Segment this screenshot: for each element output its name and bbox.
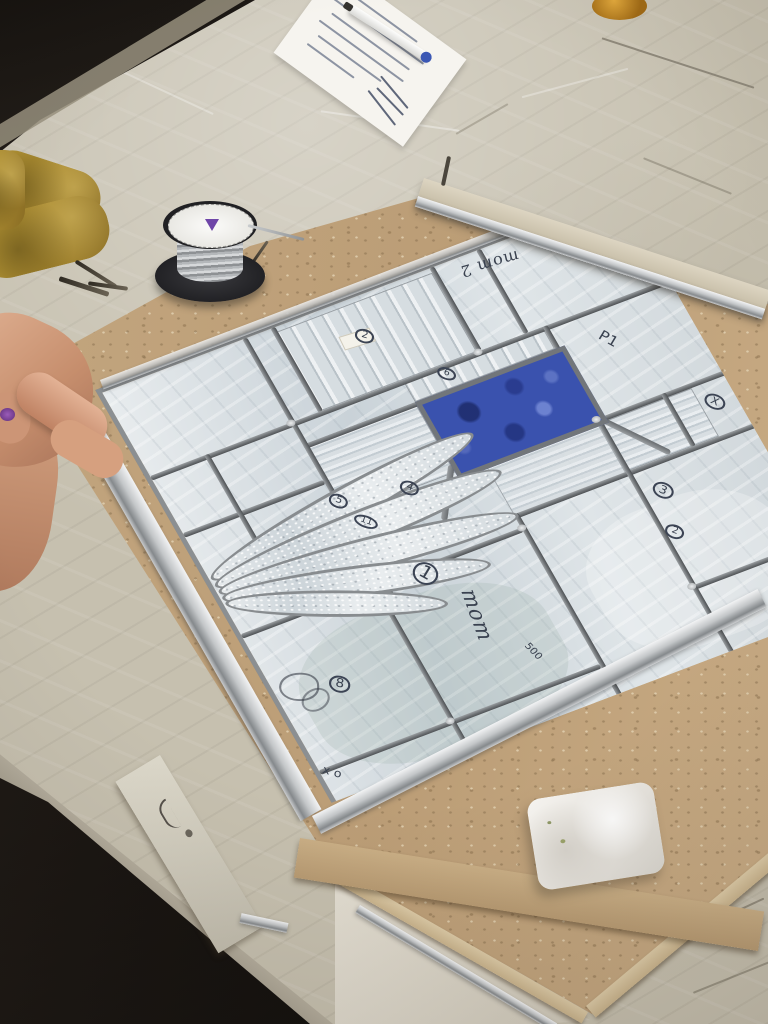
spool-logo bbox=[205, 219, 219, 231]
pencil-dot bbox=[184, 828, 194, 838]
solder-spool bbox=[155, 195, 270, 307]
glove-cuff bbox=[0, 150, 25, 230]
handwriting-line bbox=[307, 43, 355, 79]
glass-annotation: P1 bbox=[596, 328, 621, 350]
painted-thumbnail bbox=[0, 408, 15, 421]
glass-annotation: X bbox=[702, 391, 727, 413]
wax-speck bbox=[560, 839, 566, 844]
workshop-scene: mom 2 P1 2 6 4 5 11 3 X 1 mom 500 8 x o … bbox=[0, 0, 768, 1024]
spool-label bbox=[168, 204, 254, 248]
glass-annotation: x o bbox=[321, 764, 343, 781]
pencil-mark bbox=[155, 799, 182, 833]
wax-speck bbox=[547, 821, 551, 825]
leaf-blade-glass bbox=[224, 590, 450, 617]
